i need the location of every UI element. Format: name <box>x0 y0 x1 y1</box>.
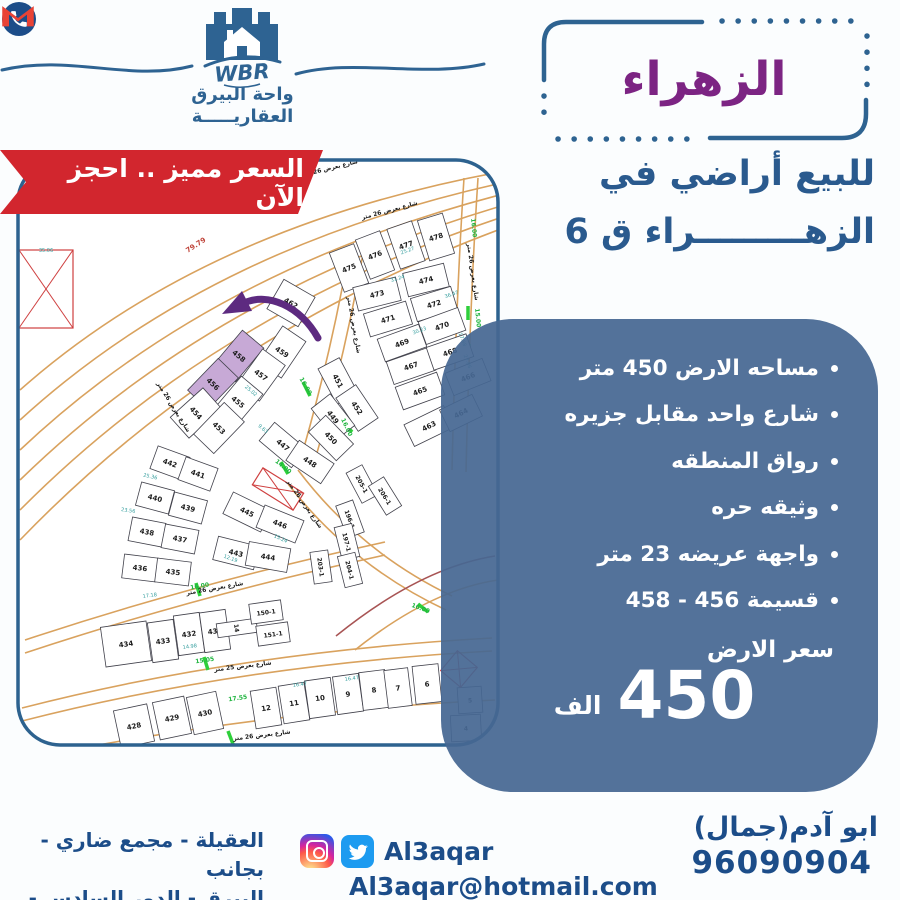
social-email: Al3aqar@hotmail.com <box>349 872 658 900</box>
social-handle: Al3aqar <box>384 837 493 866</box>
map-plot: 7 <box>384 668 412 709</box>
price-value: 450 <box>617 663 755 729</box>
map-plot: 428 <box>113 704 154 748</box>
map-plot: 436 <box>122 554 159 582</box>
offer-bullet: وثيقه حره <box>471 485 838 532</box>
map-plot: 433 <box>147 619 178 662</box>
offer-bullet: مساحه الارض 450 متر <box>471 345 838 392</box>
map-plot: 434 <box>100 621 151 667</box>
poster: WBR <box>0 0 900 900</box>
instagram-icon <box>300 834 334 868</box>
map-plot: 151-1 <box>256 622 290 646</box>
offer-bullet: قسيمة 456 - 458 <box>471 578 838 625</box>
offer-panel: مساحه الارض 450 مترشارع واحد مقابل جزيره… <box>441 319 878 792</box>
contact-name: ابو آدم(جمال) <box>538 812 878 843</box>
brand-name: واحة البيرق العقاريـــــة <box>150 84 335 128</box>
brand-name-line1: واحة البيرق <box>150 84 335 106</box>
gmail-icon <box>0 0 36 28</box>
map-plot: 435 <box>155 558 192 586</box>
page-title: الزهراء <box>544 26 864 132</box>
dimension-label: 35.06 <box>39 248 53 254</box>
map-plot-number: 11 <box>289 699 300 708</box>
offer-bullet: شارع واحد مقابل جزيره <box>471 392 838 439</box>
map-plot: 6 <box>412 664 442 705</box>
wbr-logo-text: WBR <box>213 59 270 87</box>
subtitle-line1: للبيع أراضي في <box>455 154 875 194</box>
offer-bullet: واجهة عريضه 23 متر <box>471 531 838 578</box>
map-plot-number: 10 <box>315 694 326 703</box>
office-address-line1: العقيلة - مجمع ضاري - بجانب <box>0 826 264 884</box>
price-unit: الف <box>554 673 602 720</box>
map-plot: 10 <box>304 677 335 718</box>
map-plot: 12 <box>250 687 282 729</box>
ribbon-text: السعر مميز .. احجز الآن <box>22 157 304 209</box>
twitter-icon <box>341 835 374 868</box>
subtitle-line2: الزهـــــــــراء ق 6 <box>455 212 875 252</box>
offer-bullets: مساحه الارض 450 مترشارع واحد مقابل جزيره… <box>471 345 838 624</box>
price-row: 450 الف <box>471 663 838 729</box>
map-plot-number: 12 <box>261 704 272 713</box>
map-plot: 150-1 <box>249 600 283 624</box>
wbr-logo-icon: WBR <box>205 8 280 87</box>
brand-name-line2: العقاريـــــة <box>150 106 335 128</box>
offer-bullet: رواق المنطقه <box>471 438 838 485</box>
map-plot-number: 6 <box>424 680 430 688</box>
map-plot-number: 14 <box>232 624 240 633</box>
office-address: العقيلة - مجمع ضاري - بجانب البيرق - الد… <box>0 826 264 900</box>
map-plot: 203-1 <box>310 550 332 584</box>
office-address-line2: البيرق - الدور السادس - مكتب 6 <box>0 884 264 900</box>
instagram-lens-glyph <box>313 847 325 859</box>
